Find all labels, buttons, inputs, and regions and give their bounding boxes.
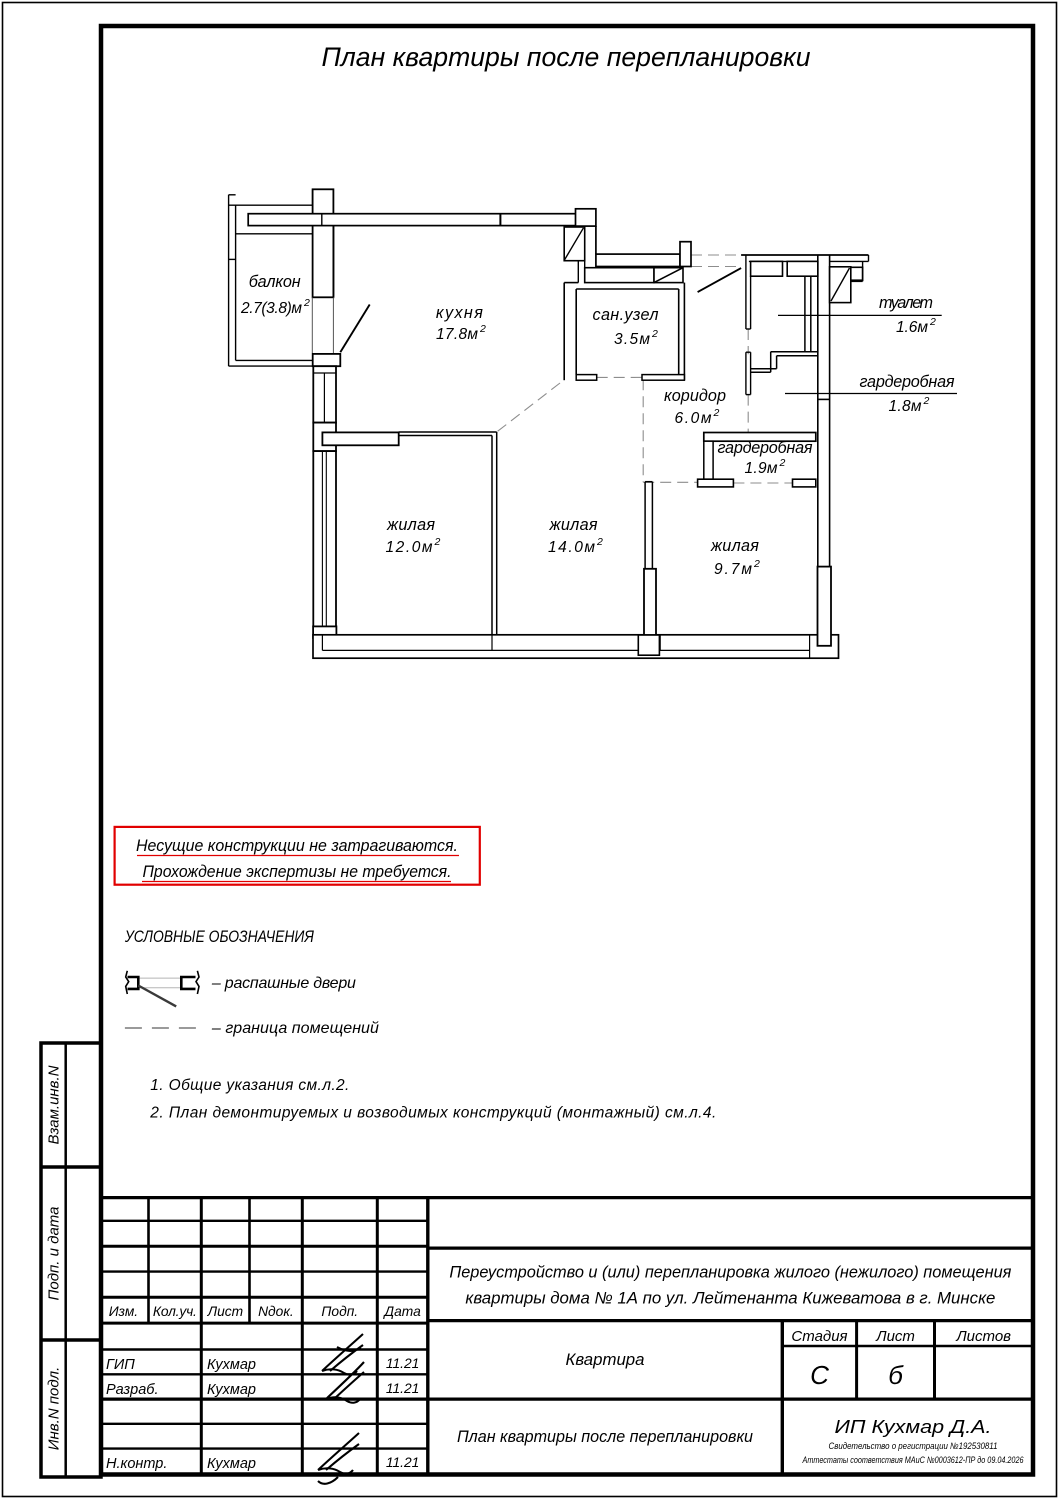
svg-text:2: 2 [923,395,930,407]
svg-text:– распашные двери: – распашные двери [211,975,356,992]
svg-text:кухня: кухня [436,304,483,322]
svg-text:жилая: жилая [549,516,598,534]
svg-text:9.7м: 9.7м [714,561,752,578]
svg-text:Стадия: Стадия [791,1328,847,1345]
svg-text:Изм.: Изм. [109,1304,138,1319]
svg-text:2: 2 [779,457,786,469]
svg-text:2: 2 [479,323,486,335]
svg-text:6.0м: 6.0м [675,410,712,427]
svg-text:2: 2 [596,536,603,548]
svg-text:12.0м: 12.0м [386,539,433,556]
svg-text:3.5м: 3.5м [614,331,650,348]
svg-text:Прохождение экспертизы не треб: Прохождение экспертизы не требуется. [143,863,452,881]
svg-text:2: 2 [651,328,658,340]
svg-text:2: 2 [929,316,936,328]
svg-text:Свидетельство о регистрации №1: Свидетельство о регистрации №192530811 [829,1441,998,1451]
svg-text:Несущие конструкции не затраги: Несущие конструкции не затрагиваются. [136,837,458,855]
svg-text:Лист: Лист [207,1304,244,1319]
svg-text:УСЛОВНЫЕ ОБОЗНАЧЕНИЯ: УСЛОВНЫЕ ОБОЗНАЧЕНИЯ [124,928,314,946]
svg-text:2: 2 [713,407,720,419]
svg-text:б: б [888,1360,904,1390]
svg-text:Аттестаты соответствия МАиС №0: Аттестаты соответствия МАиС №0003612-ПР … [802,1455,1024,1465]
svg-text:Переустройство и (или) перепла: Переустройство и (или) перепланировка жи… [449,1263,1011,1282]
svg-text:11.21: 11.21 [386,1455,420,1470]
svg-text:Кол.уч.: Кол.уч. [153,1304,197,1319]
svg-text:квартиры дома № 1А по ул. Лейт: квартиры дома № 1А по ул. Лейтенанта Киж… [465,1289,995,1308]
svg-text:Лист: Лист [875,1328,915,1345]
svg-text:2.7(3.8)м: 2.7(3.8)м [240,300,302,317]
svg-text:сан.узел: сан.узел [593,306,659,324]
svg-text:– граница помещений: – граница помещений [211,1020,379,1037]
svg-text:гардеробная: гардеробная [860,373,955,391]
svg-text:балкон: балкон [249,273,301,291]
svg-text:ГИП: ГИП [106,1357,135,1373]
svg-text:17.8м: 17.8м [436,326,478,343]
svg-text:туалет: туалет [879,294,933,312]
svg-text:Взам.инв.N: Взам.инв.N [46,1065,63,1144]
svg-text:11.21: 11.21 [386,1381,420,1396]
svg-text:ИП Кухмар Д.А.: ИП Кухмар Д.А. [835,1417,992,1437]
svg-text:2: 2 [303,297,310,309]
svg-text:2. План демонтируемых и возвод: 2. План демонтируемых и возводимых конст… [149,1105,716,1122]
svg-text:2: 2 [434,536,441,548]
svg-text:Н.контр.: Н.контр. [106,1456,167,1472]
svg-text:жилая: жилая [710,537,759,555]
svg-text:С: С [810,1360,829,1390]
svg-text:План квартиры после перепланир: План квартиры после перепланировки [457,1427,753,1446]
svg-text:Разраб.: Разраб. [106,1382,158,1398]
svg-text:План квартиры после перепланир: План квартиры после перепланировки [322,42,811,72]
svg-text:Квартира: Квартира [566,1350,645,1369]
svg-text:1.8м: 1.8м [889,398,922,415]
svg-text:коридор: коридор [664,387,726,405]
svg-text:11.21: 11.21 [386,1356,420,1371]
svg-text:1.9м: 1.9м [745,460,778,477]
svg-text:14.0м: 14.0м [548,539,595,556]
svg-text:Кухмар: Кухмар [207,1456,256,1472]
svg-text:Кухмар: Кухмар [207,1382,256,1398]
svg-text:Инв.N подл.: Инв.N подл. [46,1367,63,1451]
svg-text:жилая: жилая [386,516,435,534]
svg-text:1.6м: 1.6м [896,319,928,336]
svg-text:1. Общие указания см.л.2.: 1. Общие указания см.л.2. [150,1077,349,1094]
svg-text:Nдок.: Nдок. [258,1304,294,1319]
svg-text:Кухмар: Кухмар [207,1357,256,1373]
svg-text:Листов: Листов [955,1328,1011,1345]
svg-text:2: 2 [753,558,760,570]
svg-text:Дата: Дата [382,1304,421,1319]
svg-text:Подп.: Подп. [321,1304,358,1319]
svg-text:гардеробная: гардеробная [718,439,813,457]
svg-text:Подп. и дата: Подп. и дата [46,1207,63,1301]
